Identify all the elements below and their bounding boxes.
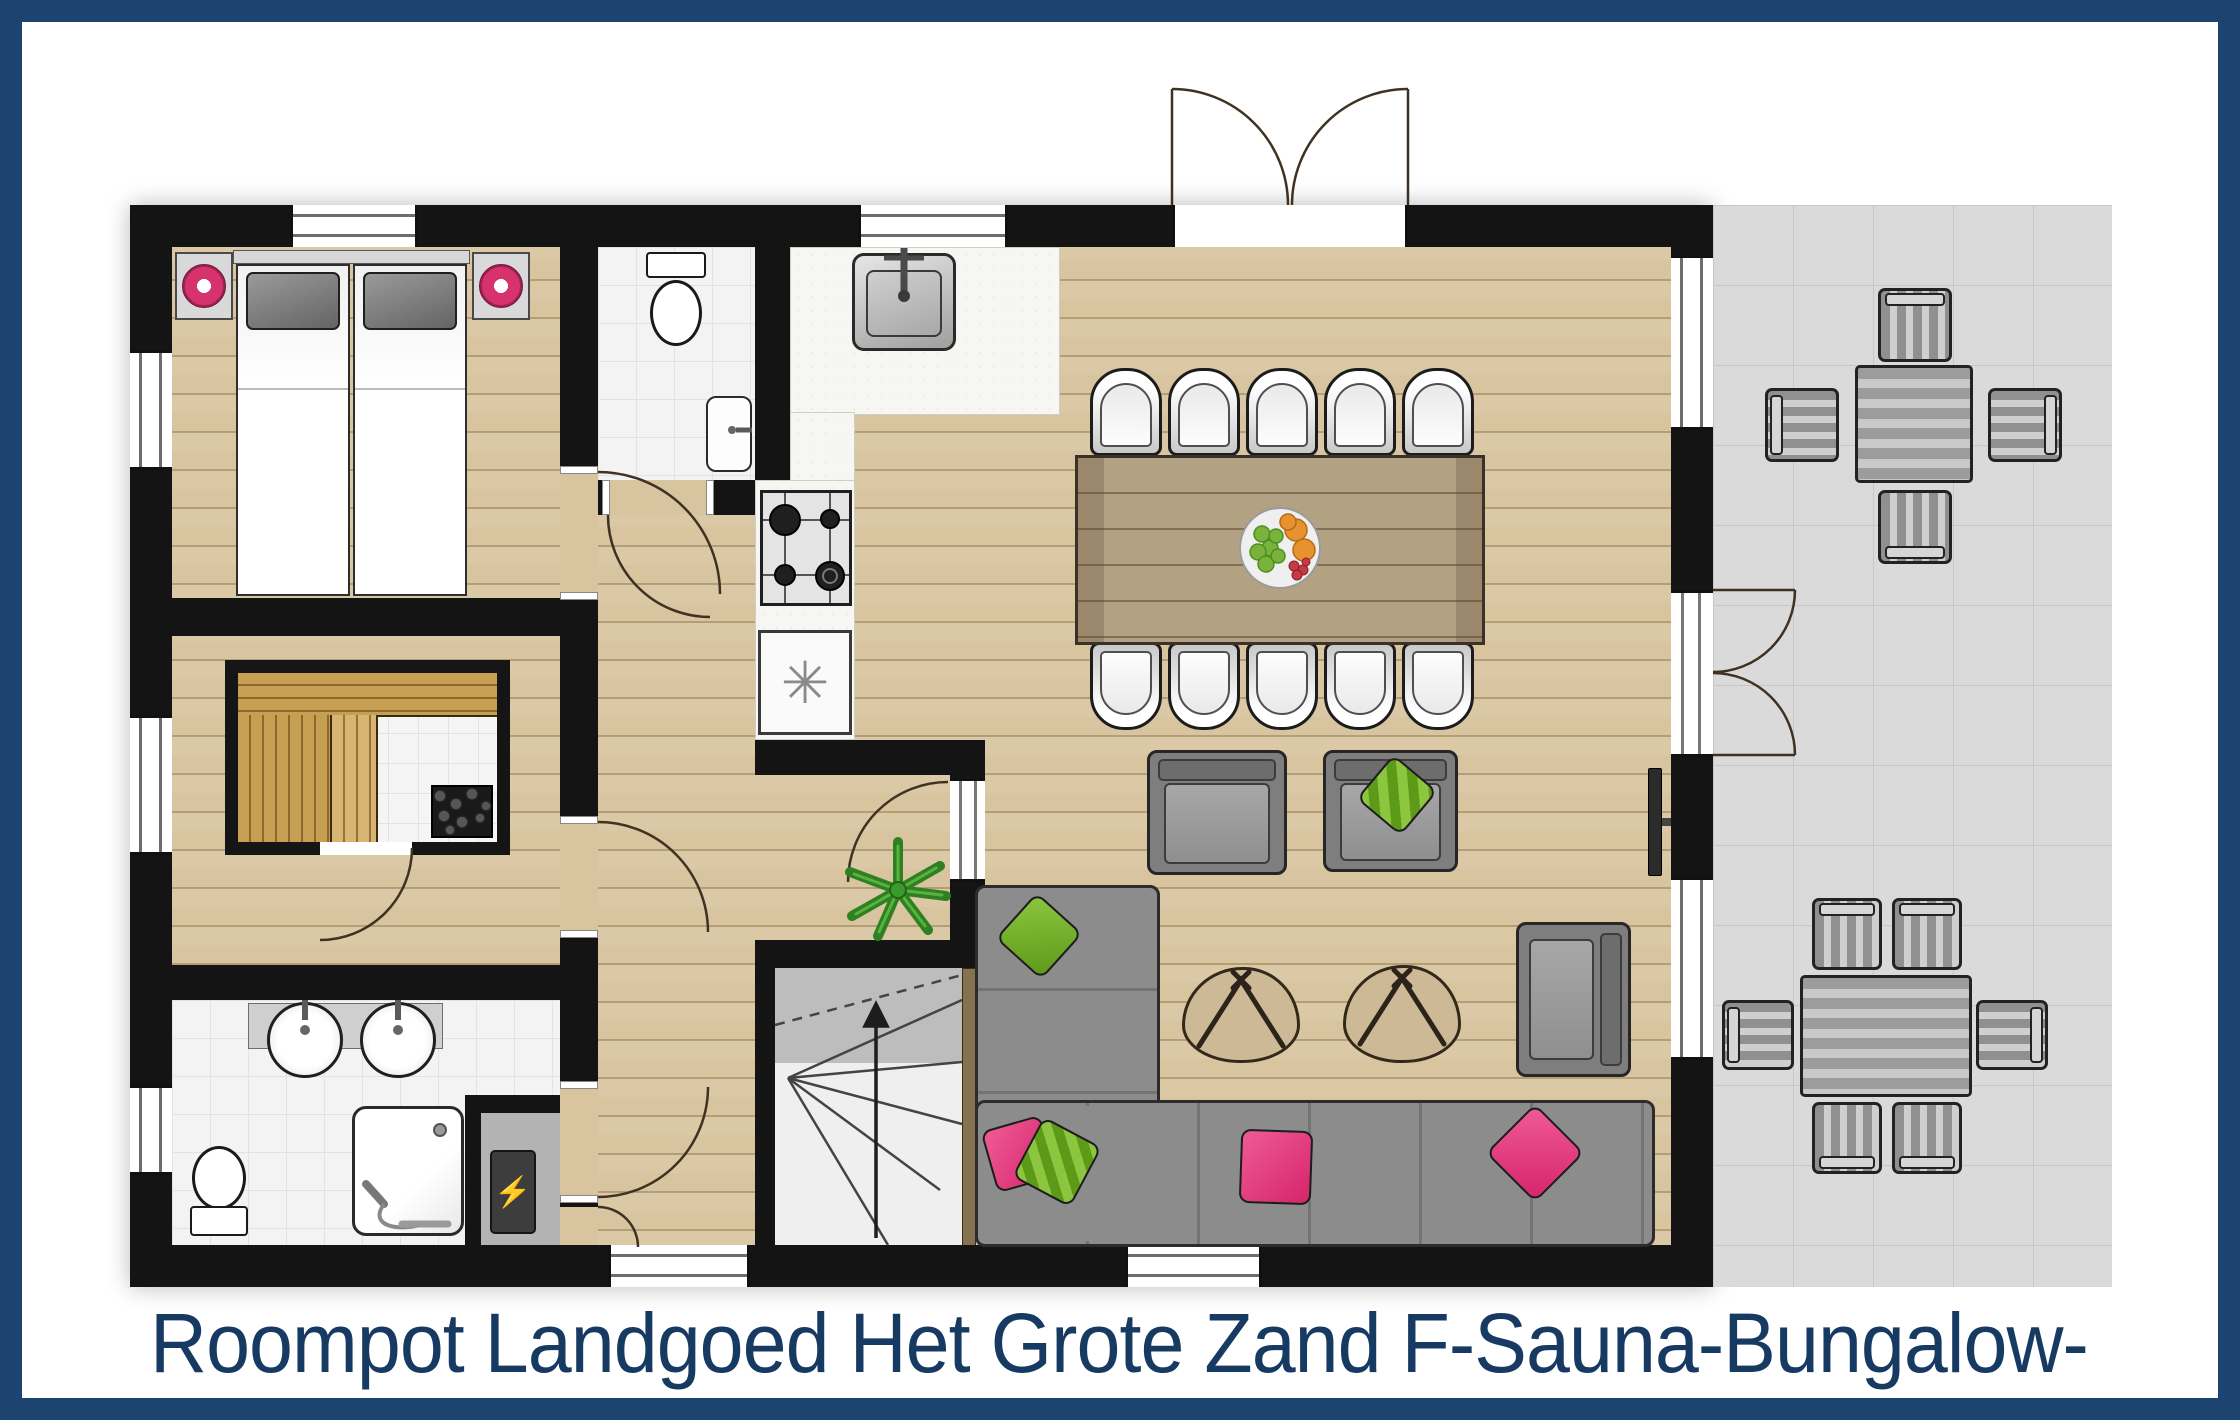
patio-chair	[1812, 898, 1882, 970]
door-gap-bathroom	[560, 1087, 598, 1197]
entrance-door-opening	[1172, 205, 1408, 247]
dining-chair	[1168, 642, 1240, 730]
toilet-cistern	[646, 252, 706, 278]
tv	[1648, 768, 1662, 876]
wall-kitchen-south	[755, 740, 985, 775]
wall-toilet-east	[755, 247, 790, 480]
stairs-rail	[962, 968, 976, 1247]
dining-chair	[1324, 642, 1396, 730]
sauna-heater	[431, 785, 493, 838]
patio-chair	[1892, 1102, 1962, 1174]
window-bathroom-west	[130, 1085, 172, 1175]
floorplan-page: ✳ ⚡	[0, 0, 2240, 1420]
wall-bottom	[130, 1245, 1713, 1287]
window-hall-south	[608, 1245, 750, 1287]
lounge-chair	[1516, 922, 1631, 1077]
door-jamb	[560, 1195, 598, 1203]
dining-table-end	[1456, 458, 1482, 642]
boiler-unit: ⚡	[490, 1150, 536, 1234]
door-gap-closet	[560, 1207, 598, 1245]
sauna-bench-left	[238, 715, 332, 842]
wall-bedroom2-south	[172, 965, 560, 1000]
garden-door-opening	[1671, 590, 1713, 757]
lamp-right	[479, 264, 523, 308]
toilet-hand-basin	[706, 396, 752, 472]
patio-chair	[1722, 1000, 1794, 1070]
door-jamb	[560, 592, 598, 600]
dining-chair	[1246, 642, 1318, 730]
armchair	[1147, 750, 1287, 875]
patio-table-large	[1800, 975, 1972, 1097]
patio-chair	[1976, 1000, 2048, 1070]
patio-table-small	[1855, 365, 1973, 483]
patio-chair	[1878, 288, 1952, 362]
window-living-south	[1125, 1245, 1262, 1287]
window-bedroom2-west	[130, 715, 172, 855]
patio-chair	[1988, 388, 2062, 462]
dining-chair	[1402, 368, 1474, 456]
pillow-bed-left	[246, 272, 340, 330]
sauna-cabin	[225, 660, 510, 855]
freezer-icon: ✳	[781, 649, 830, 717]
sauna-bench-step	[332, 715, 378, 842]
door-jamb	[602, 480, 610, 515]
duvet-fold-left	[238, 388, 348, 390]
sauna-bench-top	[238, 673, 497, 717]
door-gap-bedroom1	[560, 472, 598, 594]
dining-table-end	[1078, 458, 1104, 642]
dining-chair	[1246, 368, 1318, 456]
dining-chair	[1090, 368, 1162, 456]
window-dining-east	[1671, 255, 1713, 430]
door-jamb	[706, 480, 714, 515]
kitchen-sink	[852, 253, 956, 351]
pillow-bed-right	[363, 272, 457, 330]
door-gap-bedroom2	[560, 822, 598, 932]
bed-headboard	[233, 250, 470, 264]
door-jamb	[560, 816, 598, 824]
door-jamb	[560, 930, 598, 938]
wall-closet-west	[465, 1095, 481, 1247]
wall-bedroom1-south	[172, 598, 560, 636]
dining-chair	[1090, 642, 1162, 730]
window-kitchen-north	[858, 205, 1008, 247]
door-jamb	[560, 1081, 598, 1089]
lamp-left	[182, 264, 226, 308]
patio-chair	[1765, 388, 1839, 462]
pillow-pink-square	[1239, 1129, 1314, 1205]
window-living-east	[1671, 877, 1713, 1060]
patio-chair	[1892, 898, 1962, 970]
dining-chair	[1168, 368, 1240, 456]
boiler-icon: ⚡	[494, 1175, 531, 1210]
door-frame-living	[950, 778, 985, 882]
sauna-door-gap	[320, 842, 412, 855]
freezer: ✳	[758, 630, 852, 735]
patio-chair	[1812, 1102, 1882, 1174]
toilet-cistern-bathroom	[190, 1206, 248, 1236]
dining-chair	[1402, 642, 1474, 730]
dining-table	[1075, 455, 1485, 645]
door-jamb	[560, 466, 598, 474]
window-bedroom1-west	[130, 350, 172, 470]
kitchen-counter-corner	[790, 412, 855, 484]
wall-stairs-north	[755, 940, 985, 968]
toilet-bowl	[650, 280, 702, 346]
toilet-bowl-bathroom	[192, 1146, 246, 1210]
duvet-fold-right	[355, 388, 465, 390]
caption: Roompot Landgoed Het Grote Zand F-Sauna-…	[150, 1295, 2068, 1392]
window-bedroom1-north	[290, 205, 418, 247]
door-gap-toilet	[608, 480, 708, 515]
washbasin-right	[360, 1002, 436, 1078]
gas-hob	[760, 490, 852, 606]
patio-chair	[1878, 490, 1952, 564]
shower-tray	[352, 1106, 464, 1236]
washbasin-left	[267, 1002, 343, 1078]
dining-chair	[1324, 368, 1396, 456]
wall-stairs-west	[755, 968, 775, 1247]
stairs-landing	[775, 968, 962, 1063]
